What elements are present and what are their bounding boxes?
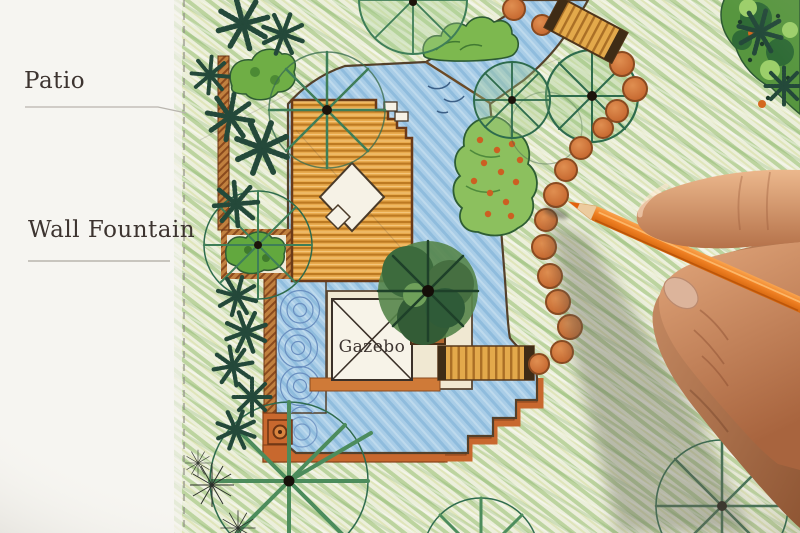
photo-of-landscape-plan: Gazebo (0, 0, 800, 533)
landscape-plan-photo: Gazebo (0, 0, 800, 533)
